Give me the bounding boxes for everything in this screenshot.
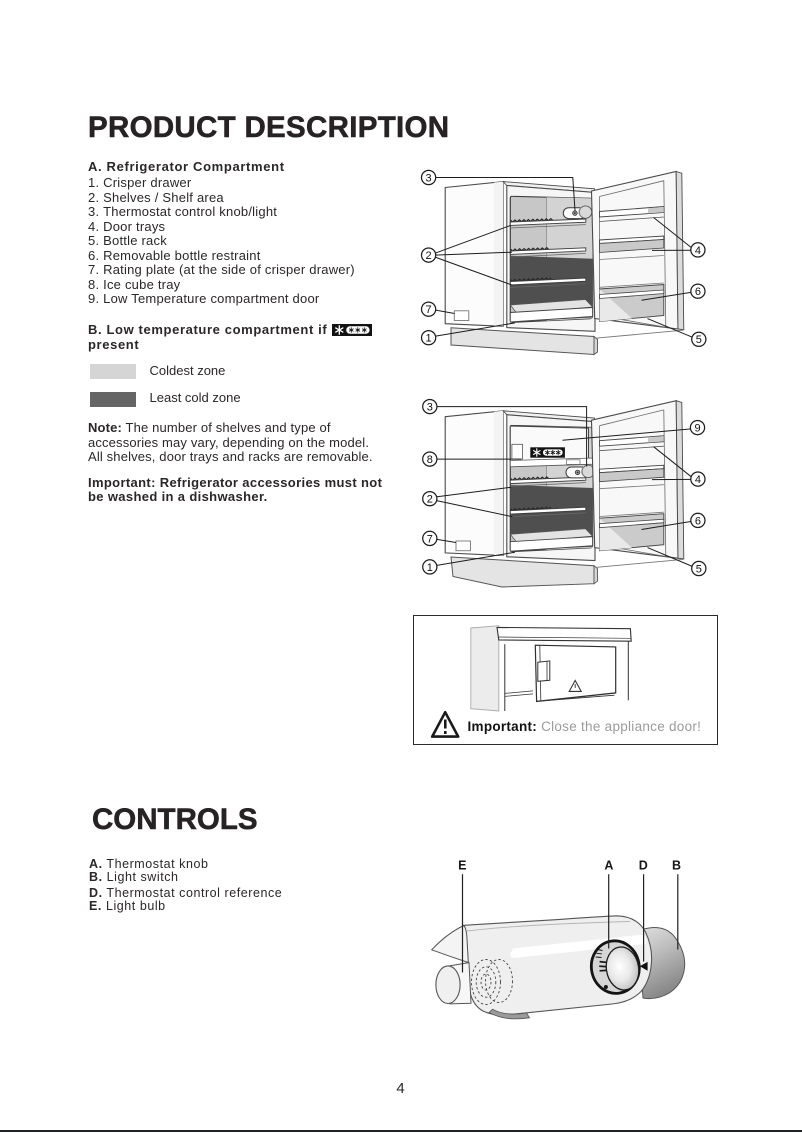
svg-text:5: 5 (696, 334, 702, 346)
svg-text:1: 1 (427, 562, 433, 574)
svg-text:6: 6 (695, 286, 701, 298)
svg-text:2: 2 (426, 250, 432, 262)
svg-text:5: 5 (696, 563, 702, 575)
svg-text:7: 7 (426, 304, 432, 316)
svg-text:B: B (672, 859, 681, 873)
svg-text:D: D (639, 859, 648, 873)
svg-text:E: E (458, 859, 466, 873)
svg-text:3: 3 (426, 172, 432, 184)
svg-text:A: A (604, 859, 613, 873)
svg-text:9: 9 (694, 423, 700, 435)
svg-text:3: 3 (427, 402, 433, 414)
svg-text:1: 1 (426, 333, 432, 345)
svg-text:2: 2 (427, 494, 433, 506)
svg-text:4: 4 (695, 474, 701, 486)
svg-text:8: 8 (427, 454, 433, 466)
svg-text:7: 7 (427, 533, 433, 545)
svg-text:4: 4 (695, 245, 701, 257)
svg-text:6: 6 (695, 515, 701, 527)
